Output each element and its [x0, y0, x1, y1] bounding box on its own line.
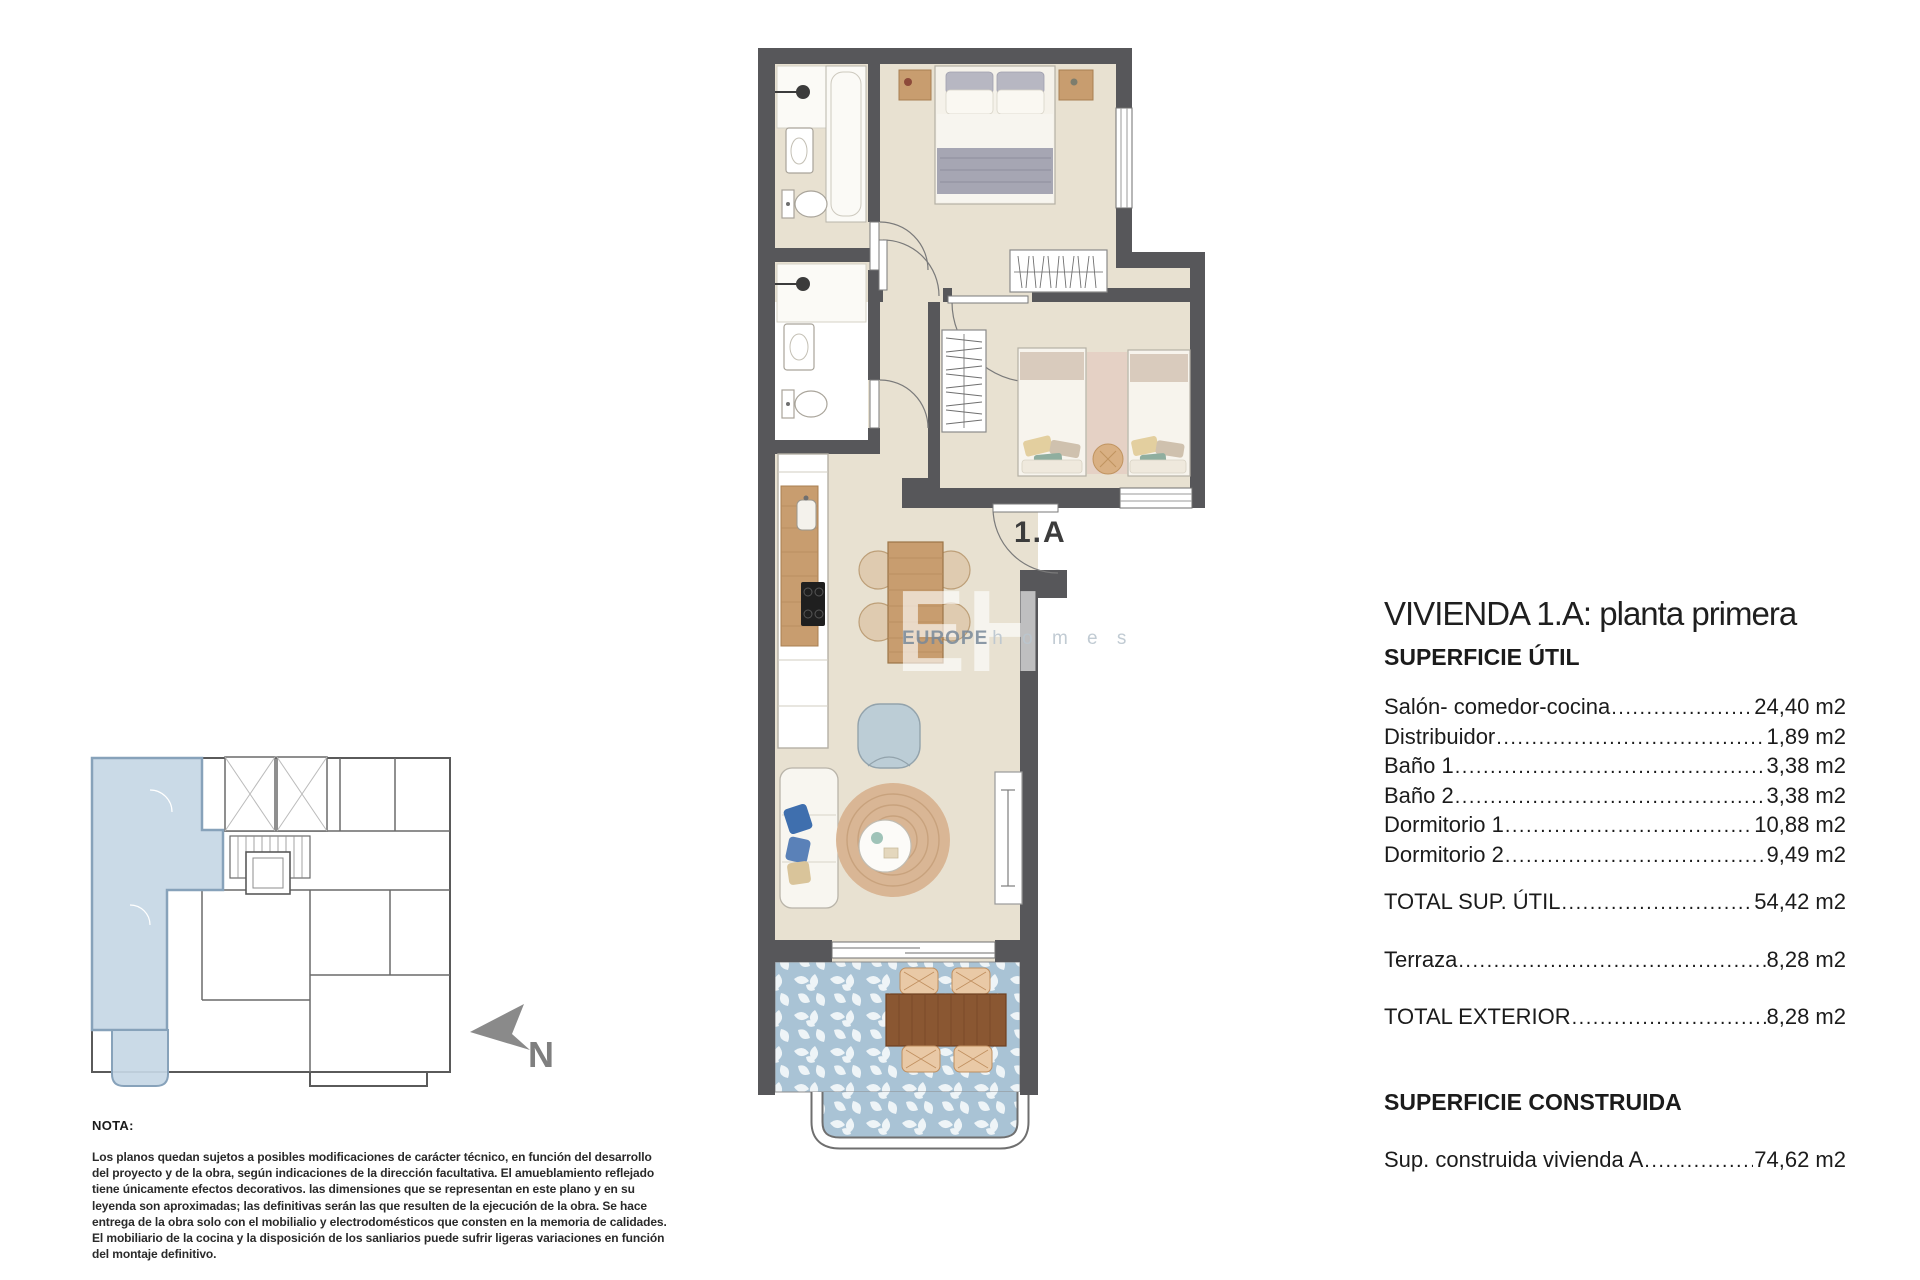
area-row: Distribuidor1,89 m2: [1384, 723, 1846, 753]
dot-leader: [1505, 811, 1753, 841]
key-plan: [80, 745, 580, 1095]
cooktop-icon: [801, 582, 825, 626]
total-util-row: TOTAL SUP. ÚTIL54,42 m2: [1384, 888, 1846, 918]
kitchen-sink-icon: [797, 496, 816, 531]
sofa-icon: [780, 768, 838, 908]
double-bed-icon: [935, 66, 1055, 204]
dot-leader: [1505, 841, 1766, 871]
area-row: Salón- comedor-cocina24,40 m2: [1384, 693, 1846, 723]
area-row: Baño 23,38 m2: [1384, 782, 1846, 812]
wardrobe-icon: [1010, 250, 1107, 292]
toilet-icon: [782, 190, 827, 218]
page-title: VIVIENDA 1.A: planta primera: [1384, 594, 1846, 634]
main-floor-plan: [740, 40, 1220, 1160]
nightstand-icon: [899, 70, 931, 100]
nightstand-icon: [1059, 70, 1093, 100]
dot-leader: [1644, 1146, 1753, 1176]
kitchen: [778, 454, 828, 748]
coffee-table-icon: [859, 820, 911, 872]
outdoor-table-icon: [886, 994, 1006, 1046]
dot-leader: [1455, 782, 1766, 812]
area-row: Baño 13,38 m2: [1384, 752, 1846, 782]
terrace-sliding-door: [832, 942, 995, 958]
outdoor-chair-icon: [900, 968, 938, 994]
dining-table-icon: [888, 542, 943, 663]
elevator-icon: [246, 852, 290, 894]
construida-header: SUPERFICIE CONSTRUIDA: [1384, 1089, 1846, 1116]
dot-leader: [1611, 693, 1753, 723]
area-table: VIVIENDA 1.A: planta primera SUPERFICIE …: [1384, 594, 1846, 1175]
floor-plan-sheet: 1.A N EH EUROPEh o m e s VIVIENDA 1.A: p…: [0, 0, 1920, 1280]
terraza-row: Terraza8,28 m2: [1384, 946, 1846, 976]
shower-tray-icon: [777, 264, 866, 322]
north-label: N: [528, 1034, 554, 1076]
dot-leader: [1455, 752, 1766, 782]
armchair-icon: [858, 704, 920, 768]
dot-leader: [1572, 1003, 1766, 1033]
outdoor-chair-icon: [954, 1046, 992, 1072]
north-arrow-icon: [470, 1004, 530, 1050]
sideboard-icon: [995, 772, 1022, 904]
total-exterior-row: TOTAL EXTERIOR8,28 m2: [1384, 1003, 1846, 1033]
faucet-icon: [796, 85, 810, 99]
area-row: Dormitorio 110,88 m2: [1384, 811, 1846, 841]
dot-leader: [1561, 888, 1753, 918]
toilet-icon: [782, 390, 827, 418]
nota-text: Los planos quedan sujetos a posibles mod…: [92, 1149, 652, 1262]
dot-leader: [1458, 946, 1765, 976]
dot-leader: [1496, 723, 1765, 753]
unit-label: 1.A: [1014, 516, 1067, 550]
pouf-icon: [1093, 444, 1123, 474]
util-header: SUPERFICIE ÚTIL: [1384, 644, 1846, 671]
util-rows: Salón- comedor-cocina24,40 m2 Distribuid…: [1384, 693, 1846, 870]
sink-icon: [784, 324, 814, 370]
single-bed-icon: [1018, 348, 1086, 476]
sink-icon: [786, 128, 813, 173]
outdoor-chair-icon: [952, 968, 990, 994]
outdoor-chair-icon: [902, 1046, 940, 1072]
bedroom1-window: [1116, 108, 1132, 208]
nota-block: NOTA: Los planos quedan sujetos a posibl…: [92, 1118, 652, 1262]
bathtub-icon: [826, 66, 866, 222]
bathroom-2: [775, 264, 866, 418]
wardrobe-icon: [942, 330, 986, 432]
construida-row: Sup. construida vivienda A74,62 m2: [1384, 1146, 1846, 1176]
single-bed-icon: [1128, 350, 1190, 476]
area-row: Dormitorio 29,49 m2: [1384, 841, 1846, 871]
faucet-icon: [796, 277, 810, 291]
bedroom2-window: [1120, 488, 1192, 508]
nota-heading: NOTA:: [92, 1118, 652, 1133]
